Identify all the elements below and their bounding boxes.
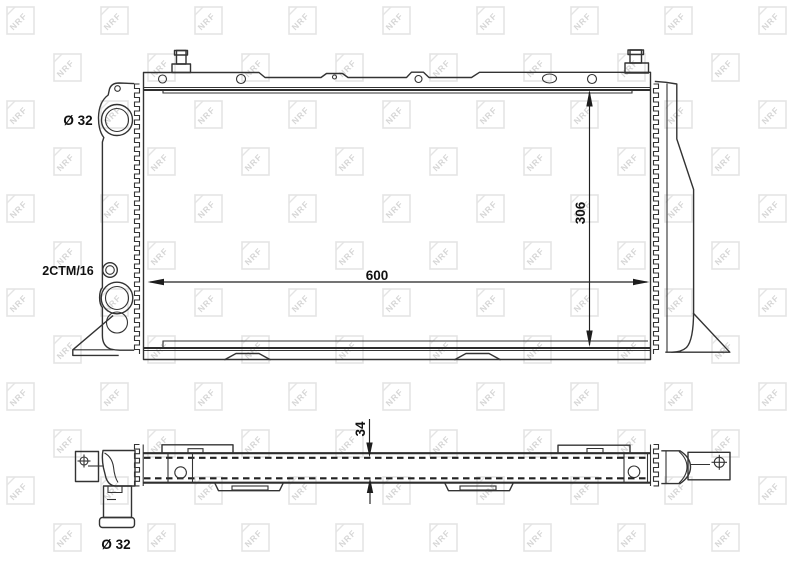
height-dimension-label: 306	[573, 201, 588, 224]
radiator-technical-drawing: NRF NRF	[0, 0, 800, 565]
outlet-diameter-label: Ø 32	[101, 537, 130, 552]
variant-code-label: 2CTM/16	[42, 264, 93, 278]
core-serration-left	[135, 84, 140, 354]
inlet-diameter-label: Ø 32	[63, 113, 92, 128]
width-dimension-label: 600	[366, 268, 389, 283]
radiator-technical-drawing-page: NRF NRF	[0, 0, 800, 565]
core-serration-right	[654, 84, 659, 354]
thickness-dimension-label: 34	[353, 421, 368, 437]
